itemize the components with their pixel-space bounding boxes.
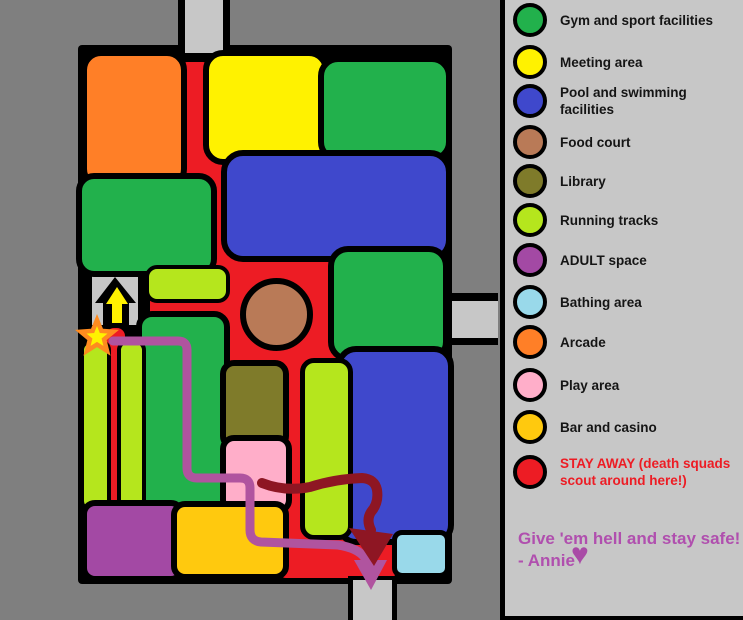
food-court-label: Food court [560, 125, 631, 159]
adult-space-swatch [513, 243, 547, 277]
bar-and-casino-swatch [513, 410, 547, 444]
legend-item-meeting-area: Meeting area [505, 45, 743, 79]
room-arcade [81, 50, 187, 189]
top-road-fill [185, 0, 223, 53]
legend-item-pool-and-swimming: Pool and swimmingfacilities [505, 84, 743, 118]
legend-item-adult-space: ADULT space [505, 243, 743, 277]
room-running-track-left-a [80, 340, 111, 511]
room-running-track-right [300, 358, 353, 540]
legend-item-bar-and-casino: Bar and casino [505, 410, 743, 444]
room-gym-center [136, 311, 230, 515]
stay-away-swatch [513, 455, 547, 489]
library-label: Library [560, 164, 606, 198]
annie-note: Give 'em hell and stay safe! - Annie [518, 528, 740, 572]
room-gym-top-right [318, 56, 452, 162]
room-meeting-area [203, 50, 329, 165]
facility-map-screenshot: Gym and sport facilitiesMeeting areaPool… [0, 0, 743, 620]
food-court-swatch [513, 125, 547, 159]
room-bar-casino [171, 501, 289, 580]
running-tracks-label: Running tracks [560, 203, 658, 237]
note-line-1: Give 'em hell and stay safe! [518, 528, 740, 550]
arcade-swatch [513, 325, 547, 359]
map-area [0, 0, 500, 620]
room-gym-right [328, 246, 449, 362]
running-tracks-swatch [513, 203, 547, 237]
room-pool-bottom [336, 346, 454, 545]
legend-item-library: Library [505, 164, 743, 198]
room-food-court [240, 278, 313, 351]
room-gym-left [76, 173, 217, 277]
legend-item-arcade: Arcade [505, 325, 743, 359]
note-line-2: - Annie [518, 550, 740, 572]
legend-item-gym-and-sport: Gym and sport facilities [505, 3, 743, 37]
room-adult-space [81, 500, 185, 582]
room-running-track-left-b [117, 340, 146, 511]
legend-item-food-court: Food court [505, 125, 743, 159]
arcade-label: Arcade [560, 325, 606, 359]
library-swatch [513, 164, 547, 198]
play-area-swatch [513, 368, 547, 402]
legend-item-bathing-area: Bathing area [505, 285, 743, 319]
pool-and-swimming-swatch [513, 84, 547, 118]
legend-item-play-area: Play area [505, 368, 743, 402]
play-area-label: Play area [560, 368, 619, 402]
room-bathing-area [392, 530, 450, 578]
gym-and-sport-swatch [513, 3, 547, 37]
entrance-area [92, 275, 138, 325]
room-running-track-top [145, 265, 230, 303]
bathing-area-swatch [513, 285, 547, 319]
heart-icon: ♥ [571, 540, 589, 570]
meeting-area-swatch [513, 45, 547, 79]
adult-space-label: ADULT space [560, 243, 647, 277]
stay-away-label: STAY AWAY (death squadsscout around here… [560, 455, 730, 489]
bar-and-casino-label: Bar and casino [560, 410, 657, 444]
pool-and-swimming-label: Pool and swimmingfacilities [560, 84, 687, 118]
gym-and-sport-label: Gym and sport facilities [560, 3, 713, 37]
legend-panel: Gym and sport facilitiesMeeting areaPool… [500, 0, 743, 620]
legend-item-running-tracks: Running tracks [505, 203, 743, 237]
legend-item-stay-away: STAY AWAY (death squadsscout around here… [505, 455, 743, 489]
meeting-area-label: Meeting area [560, 45, 643, 79]
bathing-area-label: Bathing area [560, 285, 642, 319]
right-road-fill [452, 301, 498, 338]
bottom-road-fill [353, 580, 392, 620]
